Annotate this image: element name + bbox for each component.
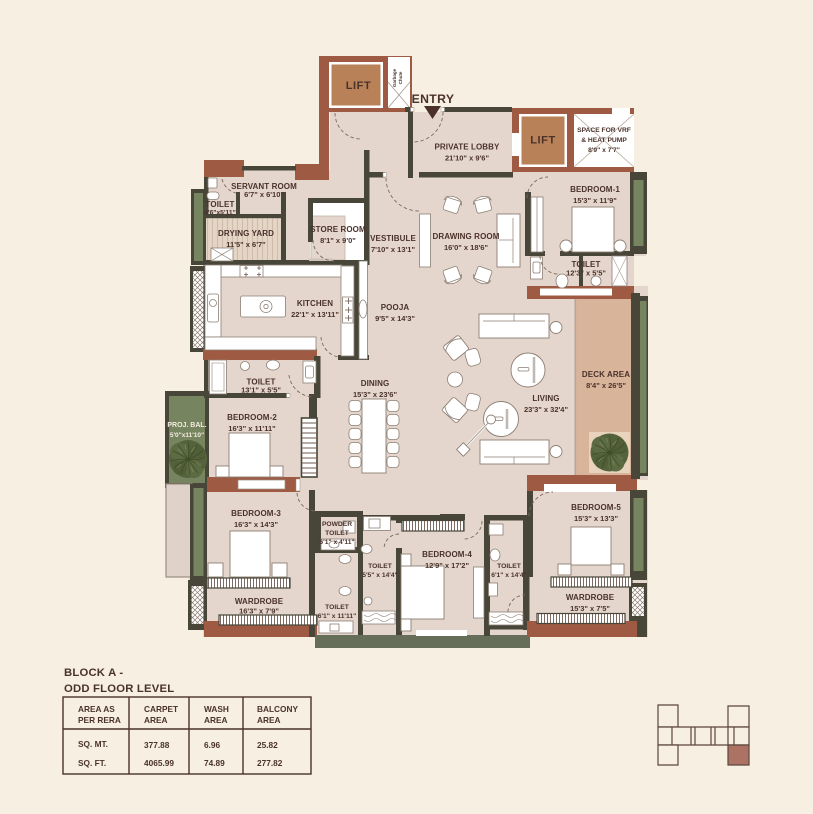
svg-text:SPACE FOR VRF: SPACE FOR VRF	[577, 127, 631, 134]
svg-text:DRAWING ROOM: DRAWING ROOM	[433, 232, 500, 241]
svg-text:BEDROOM-1: BEDROOM-1	[570, 185, 620, 194]
svg-text:4065.99: 4065.99	[144, 758, 174, 768]
svg-text:7'10" x 13'1": 7'10" x 13'1"	[371, 245, 415, 254]
svg-text:BALCONY: BALCONY	[257, 704, 298, 714]
svg-text:ENTRY: ENTRY	[412, 92, 455, 106]
svg-text:6'7" x 6'10": 6'7" x 6'10"	[244, 190, 284, 199]
svg-text:PER RERA: PER RERA	[78, 715, 121, 725]
svg-text:15'3" x 23'6": 15'3" x 23'6"	[353, 390, 397, 399]
svg-text:WARDROBE: WARDROBE	[235, 597, 284, 606]
svg-text:LIFT: LIFT	[530, 135, 556, 147]
svg-text:16'3" x 14'3": 16'3" x 14'3"	[234, 520, 278, 529]
svg-text:BLOCK A -: BLOCK A -	[64, 667, 123, 679]
svg-text:ODD FLOOR LEVEL: ODD FLOOR LEVEL	[64, 683, 174, 695]
svg-text:TOILET: TOILET	[497, 563, 522, 570]
svg-text:WARDROBE: WARDROBE	[566, 593, 615, 602]
svg-text:9'5" x 14'3": 9'5" x 14'3"	[375, 314, 415, 323]
svg-text:22'1" x 13'11": 22'1" x 13'11"	[291, 310, 339, 319]
svg-text:15'3" x 7'5": 15'3" x 7'5"	[570, 604, 610, 613]
svg-text:Garbage: Garbage	[392, 68, 397, 87]
svg-text:16'3" x 11'11": 16'3" x 11'11"	[228, 424, 276, 433]
svg-text:LIVING: LIVING	[532, 394, 559, 403]
svg-text:WASH: WASH	[204, 704, 229, 714]
svg-text:DECK AREA: DECK AREA	[582, 370, 630, 379]
svg-text:6'1" x 11'11": 6'1" x 11'11"	[318, 613, 357, 620]
svg-text:TOILET: TOILET	[368, 563, 393, 570]
svg-text:BEDROOM-4: BEDROOM-4	[422, 550, 472, 559]
svg-text:POWDER: POWDER	[322, 521, 352, 528]
svg-text:DINING: DINING	[361, 379, 390, 388]
svg-text:KITCHEN: KITCHEN	[297, 299, 333, 308]
svg-text:SQ. MT.: SQ. MT.	[78, 739, 108, 749]
svg-text:8'4" x 26'5": 8'4" x 26'5"	[586, 381, 626, 390]
svg-text:6'1" x 4'11": 6'1" x 4'11"	[319, 539, 354, 546]
svg-text:BEDROOM-5: BEDROOM-5	[571, 503, 621, 512]
svg-text:LIFT: LIFT	[346, 80, 372, 92]
svg-text:25.82: 25.82	[257, 740, 278, 750]
svg-text:AREA: AREA	[144, 715, 168, 725]
svg-text:BEDROOM-3: BEDROOM-3	[231, 509, 281, 518]
svg-text:11'5" x 6'7": 11'5" x 6'7"	[226, 240, 266, 249]
svg-text:21'10" x 9'6": 21'10" x 9'6"	[445, 154, 489, 163]
svg-text:12'3" x 5'5": 12'3" x 5'5"	[566, 269, 606, 278]
svg-text:15'3" x 13'3": 15'3" x 13'3"	[574, 514, 618, 523]
svg-text:23'3" x 32'4": 23'3" x 32'4"	[524, 405, 568, 414]
svg-text:TOILET: TOILET	[206, 200, 235, 209]
svg-text:BEDROOM-2: BEDROOM-2	[227, 413, 277, 422]
svg-text:8'9" x 7'7": 8'9" x 7'7"	[588, 147, 620, 154]
svg-text:POOJA: POOJA	[381, 303, 410, 312]
svg-text:& HEAT PUMP: & HEAT PUMP	[581, 137, 627, 144]
svg-text:377.88: 377.88	[144, 740, 170, 750]
svg-text:VESTIBULE: VESTIBULE	[370, 234, 416, 243]
svg-text:SQ. FT.: SQ. FT.	[78, 758, 106, 768]
svg-text:5'0"x11'10": 5'0"x11'10"	[170, 432, 204, 439]
svg-text:AREA AS: AREA AS	[78, 704, 115, 714]
svg-text:277.82: 277.82	[257, 758, 283, 768]
svg-text:6'1" x 14'4": 6'1" x 14'4"	[491, 572, 527, 579]
svg-text:16'3" x 7'9": 16'3" x 7'9"	[239, 607, 279, 616]
svg-text:16'0" x 18'6": 16'0" x 18'6"	[444, 243, 488, 252]
svg-text:74.89: 74.89	[204, 758, 225, 768]
svg-text:PRIVATE LOBBY: PRIVATE LOBBY	[434, 143, 500, 152]
svg-text:DRYING YARD: DRYING YARD	[218, 229, 274, 238]
svg-text:12'9" x 17'2": 12'9" x 17'2"	[425, 561, 469, 570]
svg-text:TOILET: TOILET	[325, 604, 350, 611]
svg-text:AREA: AREA	[204, 715, 228, 725]
svg-text:AREA: AREA	[257, 715, 281, 725]
svg-text:Chute: Chute	[398, 71, 403, 84]
svg-text:15'3" x 11'9": 15'3" x 11'9"	[573, 196, 617, 205]
svg-text:CARPET: CARPET	[144, 704, 178, 714]
svg-text:6.96: 6.96	[204, 740, 221, 750]
svg-text:8'1" x 9'0": 8'1" x 9'0"	[320, 236, 356, 245]
svg-text:4'6"x5'11": 4'6"x5'11"	[204, 210, 235, 217]
svg-text:13'1" x 5'5": 13'1" x 5'5"	[241, 386, 281, 395]
svg-text:STORE ROOM: STORE ROOM	[310, 225, 366, 234]
svg-text:PROJ. BAL.: PROJ. BAL.	[167, 422, 206, 429]
svg-text:TOILET: TOILET	[325, 530, 350, 537]
svg-text:5'5" x 14'4": 5'5" x 14'4"	[362, 572, 398, 579]
